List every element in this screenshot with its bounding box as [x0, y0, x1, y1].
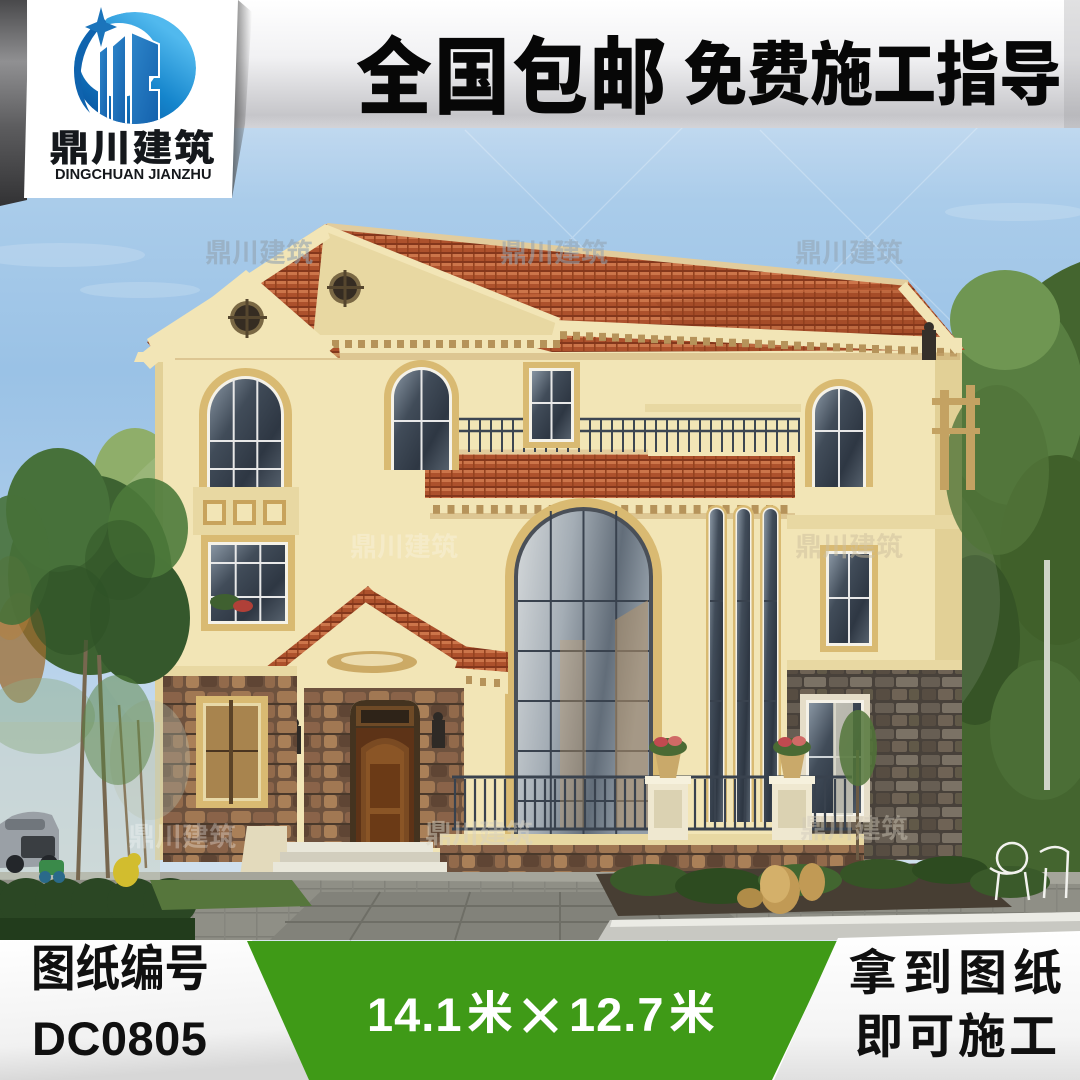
svg-text:12.7: 12.7 — [569, 988, 664, 1041]
svg-text:DC0805: DC0805 — [32, 1012, 207, 1065]
svg-text:DINGCHUAN JIANZHU: DINGCHUAN JIANZHU — [55, 167, 211, 183]
svg-text:14.1: 14.1 — [367, 988, 462, 1041]
